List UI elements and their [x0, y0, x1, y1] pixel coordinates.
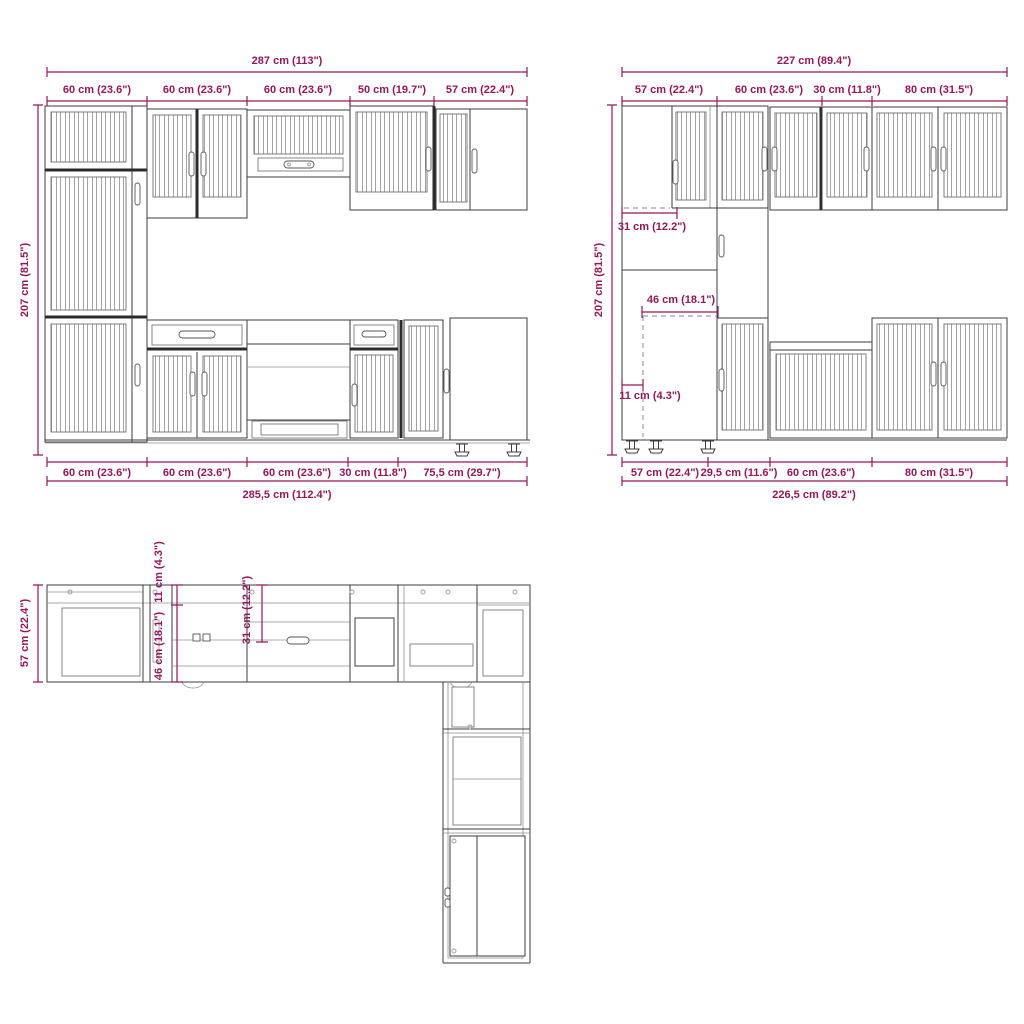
side-elevation-diagram: 227 cm (89.4") 57 cm (22.4") 60 cm (23.6…: [593, 55, 1007, 501]
dim-label-front-height: 207 cm (81.5"): [19, 243, 31, 318]
dim-label-side-bottom-3: 60 cm (23.6"): [787, 467, 856, 479]
dim-label-front-bottom-3: 60 cm (23.6"): [263, 467, 332, 479]
dim-label-plan-recess-depth: 46 cm (18.1"): [153, 612, 165, 681]
dim-label-front-total-width: 287 cm (113"): [252, 55, 323, 67]
dim-label-front-top-2: 60 cm (23.6"): [163, 84, 232, 96]
dim-label-front-bottom-4: 30 cm (11.8"): [339, 467, 407, 479]
technical-drawing-canvas: 287 cm (113") 60 cm (23.6") 60 cm (23.6"…: [0, 0, 1024, 1024]
dim-label-plan-recess-width: 31 cm (12.2"): [241, 576, 253, 645]
dim-label-side-height: 207 cm (81.5"): [593, 243, 605, 318]
front-elevation-cabinets: [45, 106, 530, 456]
plan-view-cabinets: [47, 585, 530, 963]
plan-view-diagram: 57 cm (22.4") 11 cm (4.3") 46 cm (18.1")…: [19, 541, 530, 963]
dim-label-side-total-width: 227 cm (89.4"): [777, 55, 852, 67]
dim-label-side-bottom-1: 57 cm (22.4"): [631, 467, 700, 479]
dim-label-front-top-5: 57 cm (22.4"): [446, 84, 515, 96]
dim-label-side-bottom-2: 29,5 cm (11.6"): [701, 467, 778, 479]
dim-label-front-bottom-5: 75,5 cm (29.7"): [423, 467, 501, 479]
dim-label-side-top-2: 60 cm (23.6"): [735, 84, 804, 96]
dim-label-side-plinth-offset: 11 cm (4.3"): [619, 390, 681, 402]
dim-label-front-top-1: 60 cm (23.6"): [63, 84, 132, 96]
dim-label-front-bottom-2: 60 cm (23.6"): [163, 467, 232, 479]
dim-label-side-recess-depth: 46 cm (18.1"): [647, 294, 716, 306]
dim-label-side-top-4: 80 cm (31.5"): [905, 84, 974, 96]
dim-label-side-top-1: 57 cm (22.4"): [635, 84, 704, 96]
dim-label-side-recess-width: 31 cm (12.2"): [618, 221, 687, 233]
dim-label-plan-depth: 57 cm (22.4"): [19, 599, 31, 668]
dim-label-side-top-3: 30 cm (11.8"): [813, 84, 881, 96]
dim-label-front-total-bottom: 285,5 cm (112.4"): [243, 489, 332, 501]
dim-label-side-total-bottom: 226,5 cm (89.2"): [772, 489, 856, 501]
dim-label-plan-offset: 11 cm (4.3"): [153, 541, 165, 603]
dim-label-front-top-4: 50 cm (19.7"): [358, 84, 427, 96]
dim-label-front-bottom-1: 60 cm (23.6"): [63, 467, 132, 479]
dim-label-front-top-3: 60 cm (23.6"): [264, 84, 333, 96]
dim-label-side-bottom-4: 80 cm (31.5"): [905, 467, 974, 479]
kitchen-dimension-drawing: 287 cm (113") 60 cm (23.6") 60 cm (23.6"…: [0, 0, 1024, 1024]
front-elevation-diagram: 287 cm (113") 60 cm (23.6") 60 cm (23.6"…: [19, 55, 530, 501]
